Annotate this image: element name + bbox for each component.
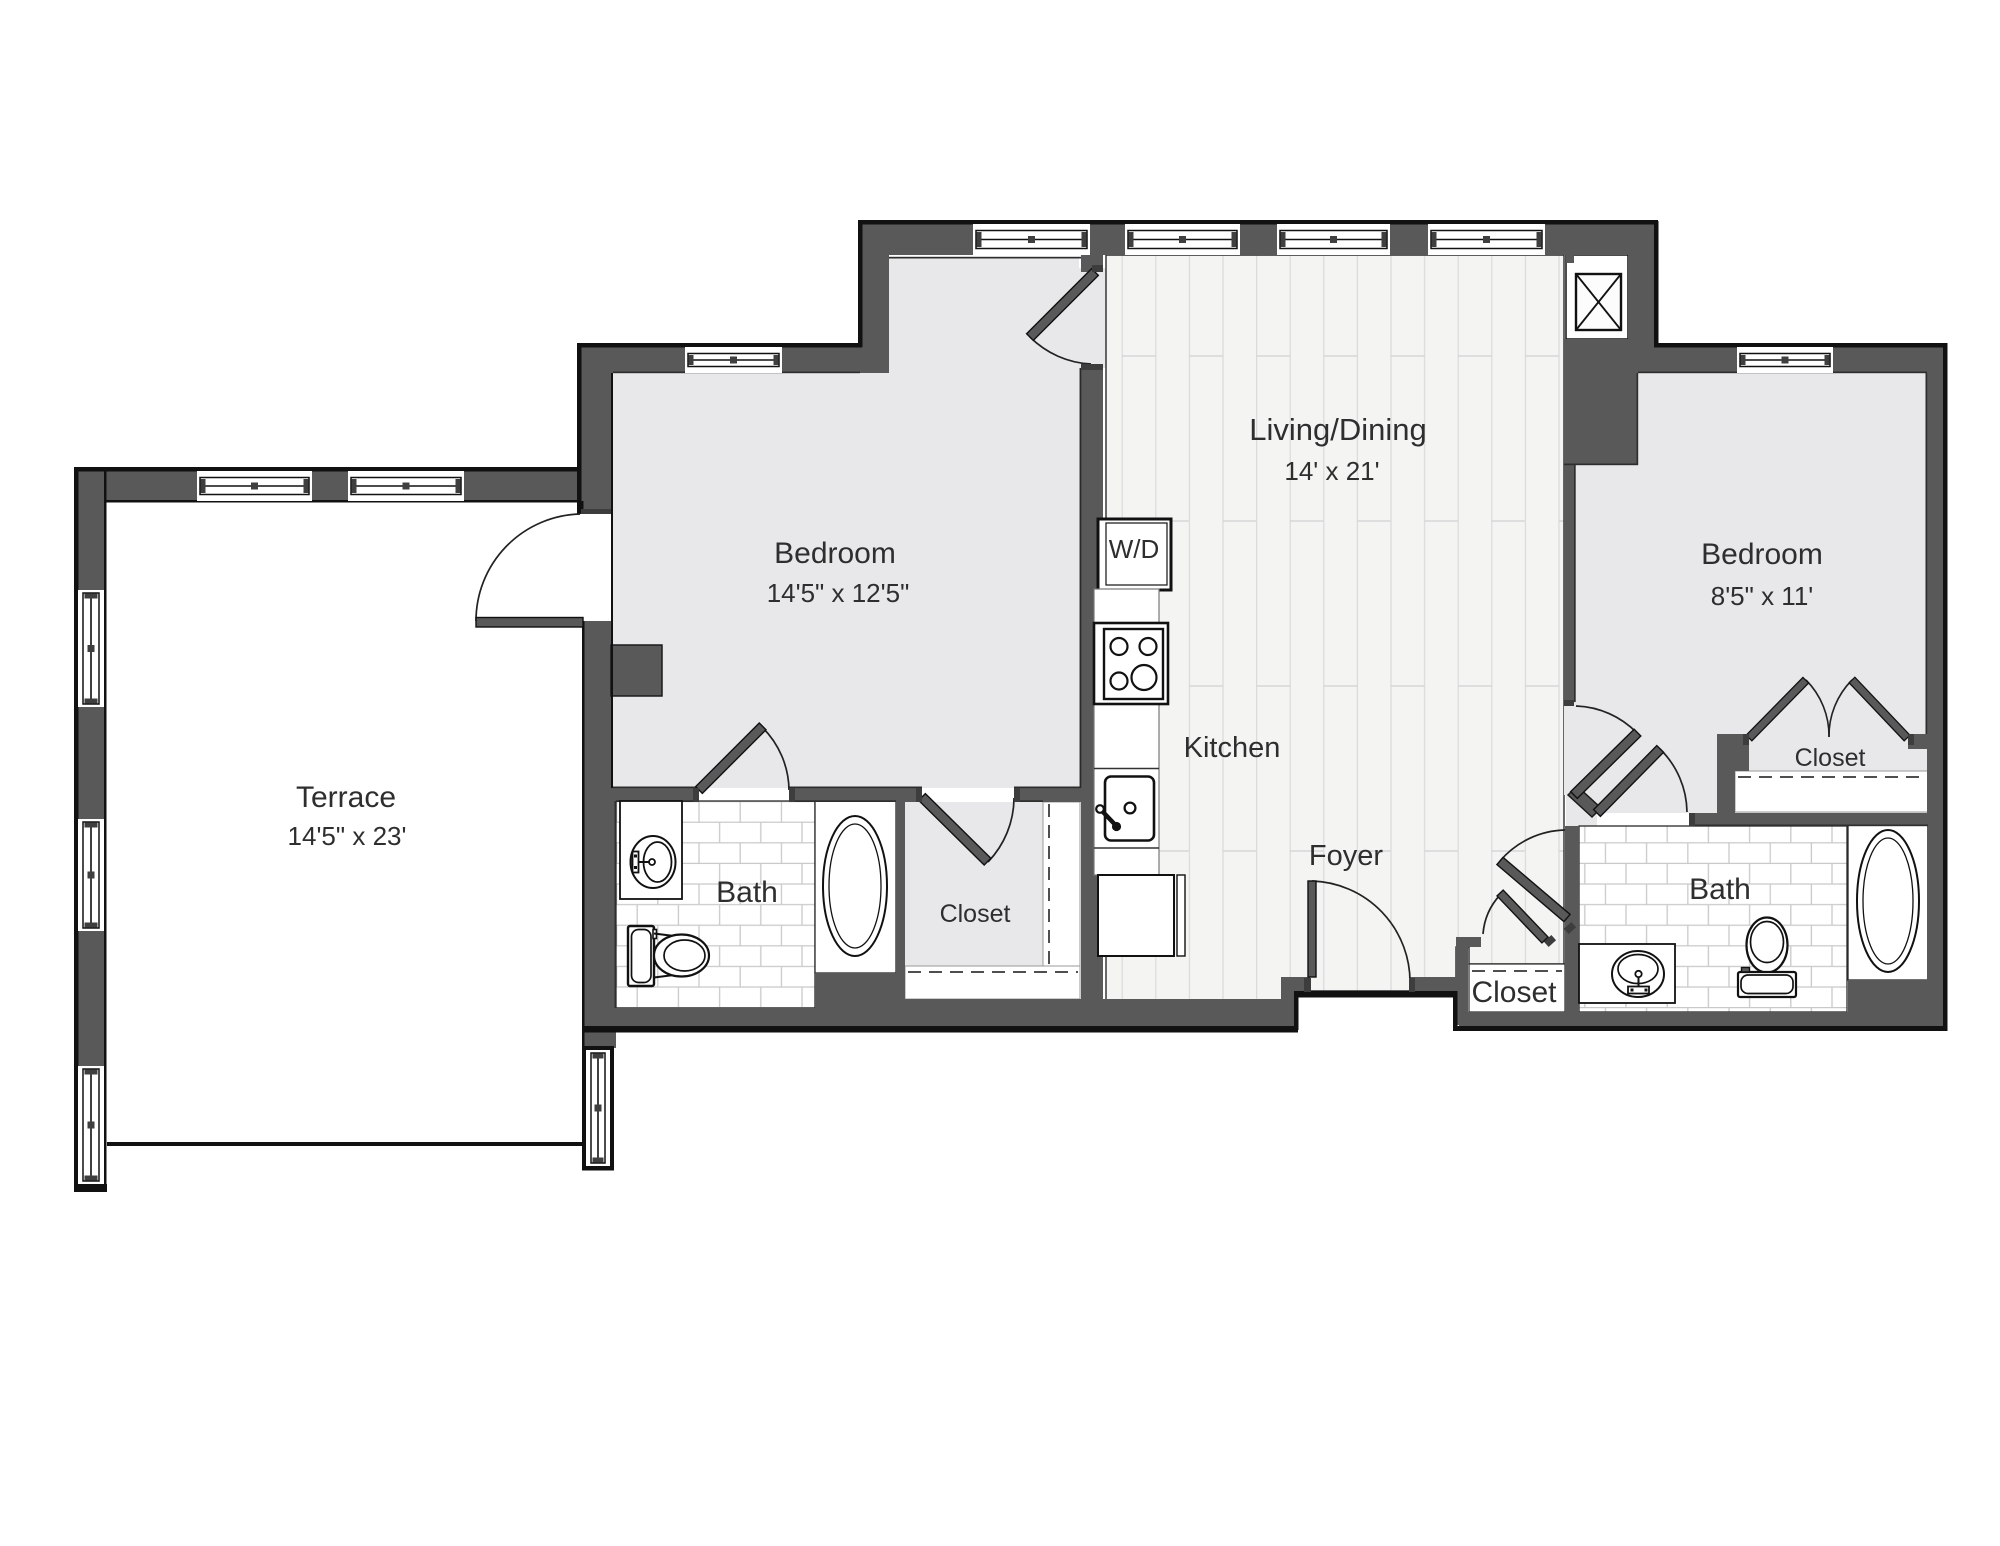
- svg-text:W/D: W/D: [1109, 534, 1160, 564]
- svg-text:Kitchen: Kitchen: [1184, 732, 1281, 764]
- svg-text:14'5" x 23': 14'5" x 23': [288, 821, 407, 851]
- svg-text:Closet: Closet: [940, 900, 1011, 928]
- svg-text:Bedroom: Bedroom: [774, 537, 896, 570]
- svg-text:Living/Dining: Living/Dining: [1249, 412, 1427, 447]
- svg-text:Bedroom: Bedroom: [1701, 538, 1823, 571]
- svg-text:Foyer: Foyer: [1309, 840, 1383, 872]
- svg-text:Bath: Bath: [1689, 873, 1751, 906]
- svg-text:Closet: Closet: [1795, 744, 1866, 772]
- svg-text:Terrace: Terrace: [296, 781, 396, 814]
- svg-text:Closet: Closet: [1471, 976, 1557, 1009]
- svg-text:14' x 21': 14' x 21': [1284, 456, 1379, 486]
- svg-text:8'5" x 11': 8'5" x 11': [1711, 581, 1814, 611]
- svg-text:Bath: Bath: [716, 876, 778, 909]
- svg-text:14'5" x 12'5": 14'5" x 12'5": [767, 578, 910, 608]
